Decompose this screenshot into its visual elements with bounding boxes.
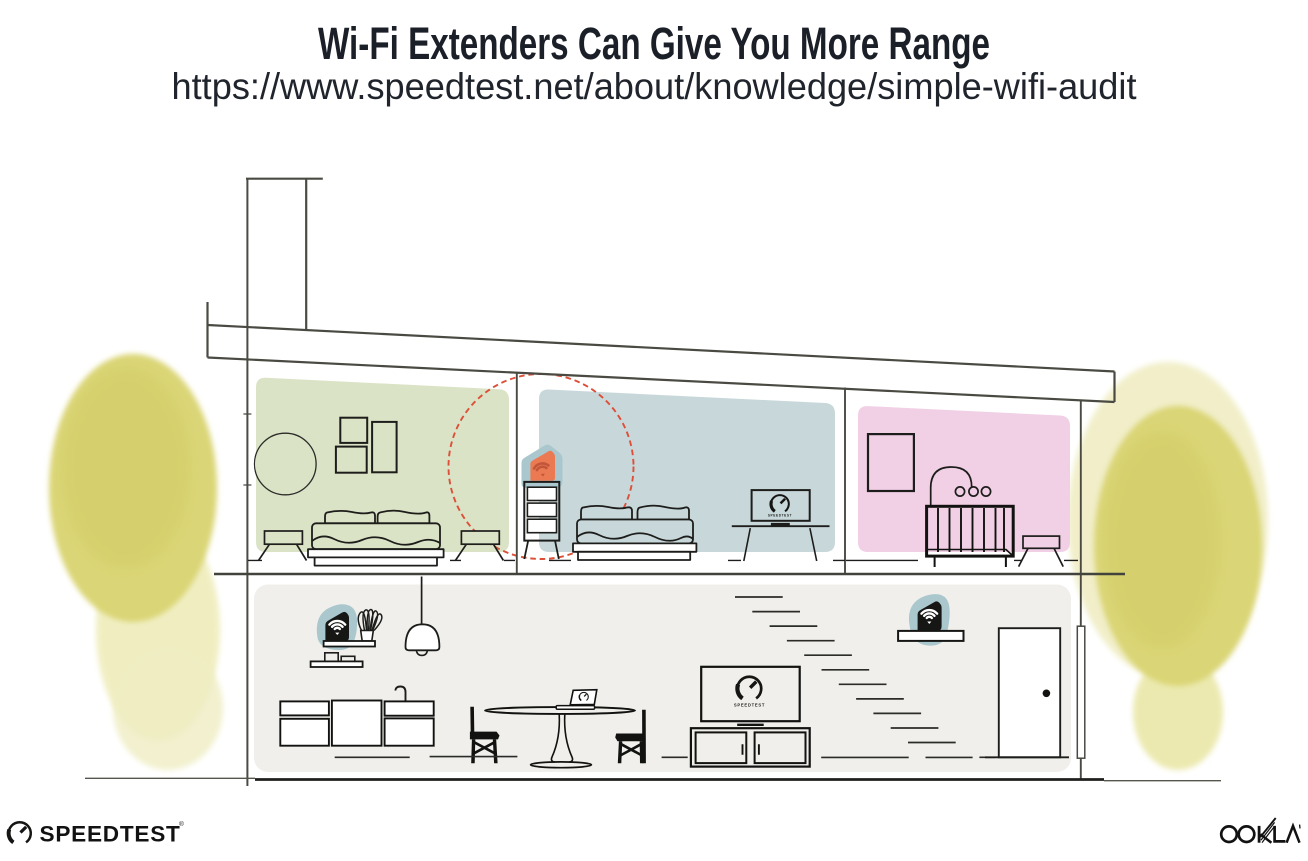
svg-text:https://www.speedtest.net/abou: https://www.speedtest.net/about/knowledg… <box>172 66 1138 107</box>
svg-text:SPEEDTEST: SPEEDTEST <box>768 514 792 518</box>
svg-text:®: ® <box>179 820 184 828</box>
svg-text:SPEEDTEST: SPEEDTEST <box>40 822 181 847</box>
svg-text:Wi-Fi Extenders Can Give You M: Wi-Fi Extenders Can Give You More Range <box>318 18 990 69</box>
svg-text:SPEEDTEST: SPEEDTEST <box>734 703 765 708</box>
